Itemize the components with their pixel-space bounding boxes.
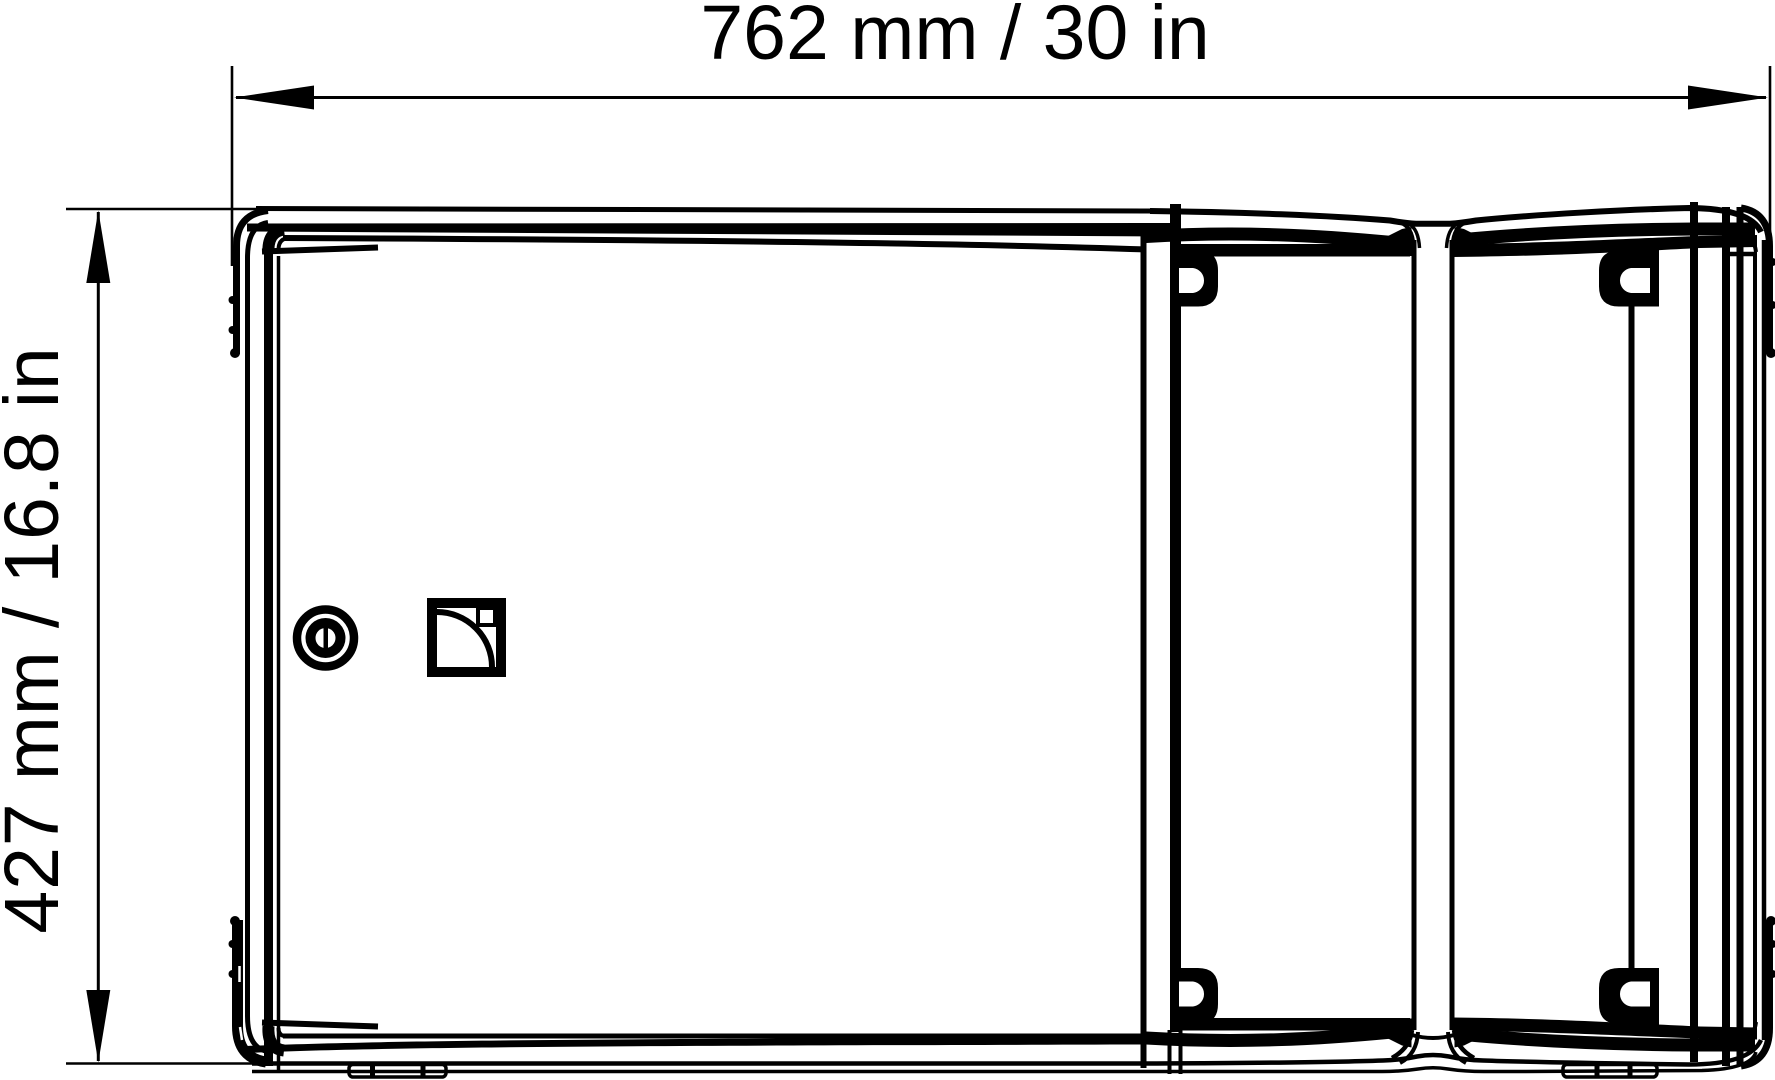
svg-text:427 mm / 16.8 in: 427 mm / 16.8 in <box>0 346 75 933</box>
svg-text:762 mm / 30 in: 762 mm / 30 in <box>700 0 1209 76</box>
